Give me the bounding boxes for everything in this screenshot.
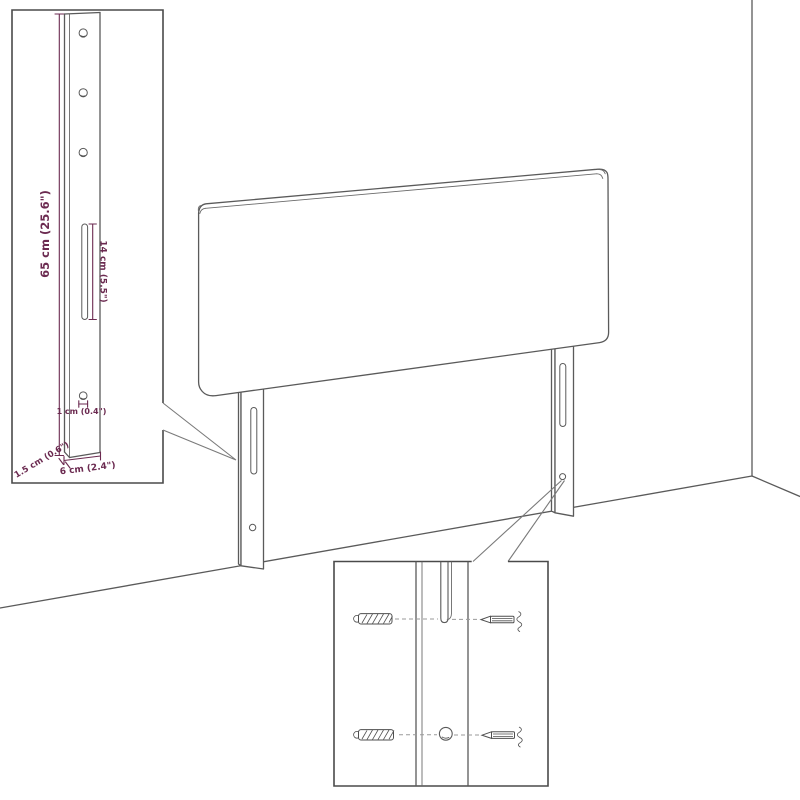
mounting-hole-middle bbox=[79, 89, 87, 97]
floor-line-left bbox=[0, 476, 752, 608]
right-leg-slot bbox=[560, 364, 566, 427]
screw-head-squiggle-2 bbox=[517, 727, 522, 747]
detail-box-leg: 65 cm (25.6") 14 cm (5.5") 1 cm (0.4") 1… bbox=[12, 10, 163, 483]
leg-slot-front-view bbox=[82, 224, 88, 320]
screw-tip-2 bbox=[482, 732, 492, 739]
screw-tip bbox=[481, 616, 491, 623]
callout-wedge-right bbox=[473, 481, 565, 562]
thickness-dimension-tick-a bbox=[59, 459, 64, 465]
leg-lower-hole bbox=[79, 392, 87, 400]
width-dimension-label: 6 cm (2.4") bbox=[59, 461, 116, 478]
diagram-page: 65 cm (25.6") 14 cm (5.5") 1 cm (0.4") 1… bbox=[0, 0, 800, 800]
hole-dimension-label: 1 cm (0.4") bbox=[57, 407, 107, 416]
leg-front-view bbox=[65, 13, 101, 458]
callout-lines-left bbox=[163, 403, 236, 460]
left-leg bbox=[239, 382, 264, 569]
height-dimension-label: 65 cm (25.6") bbox=[38, 190, 52, 278]
wall-strut bbox=[416, 562, 468, 786]
hardware-row-bottom bbox=[354, 727, 523, 747]
detail-box-mounting bbox=[334, 562, 548, 787]
callout-lines-right bbox=[473, 481, 565, 562]
wall-plug-icon bbox=[354, 614, 393, 624]
hardware-row-top bbox=[354, 612, 522, 632]
callout-wedge-left bbox=[163, 403, 236, 460]
screw-icon bbox=[481, 612, 522, 632]
left-leg-hole bbox=[249, 524, 255, 530]
leg-bottom-bevel bbox=[65, 452, 70, 458]
screw-head-squiggle bbox=[517, 612, 522, 632]
slot-dimension-label: 14 cm (5.5") bbox=[98, 240, 108, 302]
floor-line-right bbox=[752, 476, 800, 497]
right-leg bbox=[552, 340, 574, 516]
left-leg-slot bbox=[251, 408, 257, 475]
mounting-hole-bottom bbox=[79, 148, 87, 156]
headboard bbox=[198, 169, 608, 396]
wall-plug-icon-2 bbox=[354, 730, 394, 740]
screw-icon-2 bbox=[482, 727, 522, 747]
mounting-hole-top bbox=[79, 29, 87, 37]
strut-slot-detail bbox=[441, 562, 448, 623]
screw-shank-2 bbox=[492, 732, 515, 739]
headboard-mounting-diagram: 65 cm (25.6") 14 cm (5.5") 1 cm (0.4") 1… bbox=[0, 0, 800, 800]
right-leg-hole bbox=[560, 474, 566, 480]
screw-shank bbox=[491, 616, 515, 623]
